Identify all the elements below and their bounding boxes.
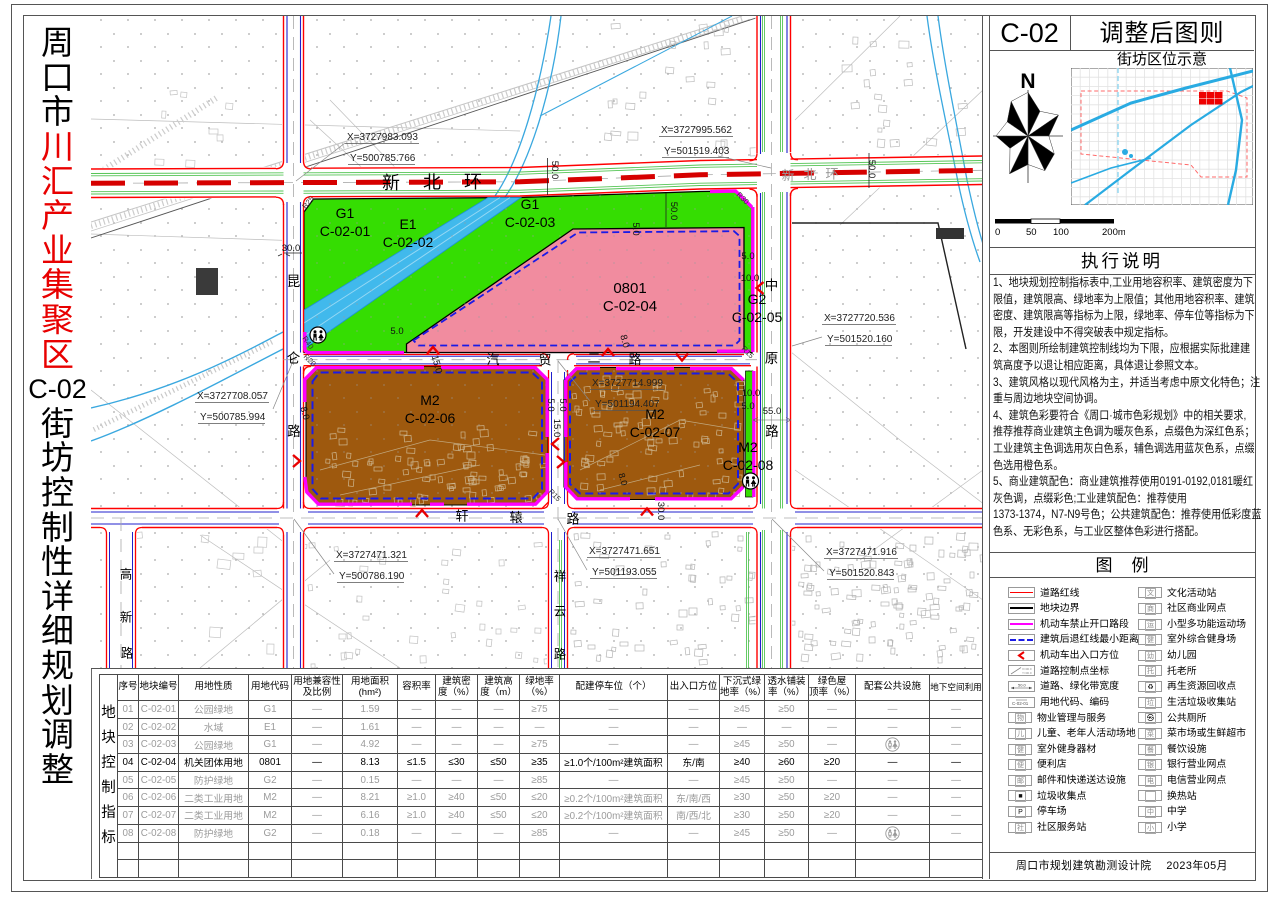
svg-text:X=3727471.321: X=3727471.321 bbox=[336, 550, 407, 561]
svg-text:原: 原 bbox=[765, 351, 779, 366]
svg-text:E1: E1 bbox=[399, 216, 416, 232]
svg-text:C-02-07: C-02-07 bbox=[630, 424, 681, 440]
svg-text:环: 环 bbox=[464, 172, 482, 192]
svg-text:30.0: 30.0 bbox=[282, 243, 301, 254]
svg-text:X=3727995.562: X=3727995.562 bbox=[661, 125, 732, 136]
svg-text:C-02-03: C-02-03 bbox=[505, 214, 556, 230]
svg-text:环: 环 bbox=[825, 167, 838, 182]
svg-text:X=3727471.651: X=3727471.651 bbox=[589, 546, 660, 557]
svg-text:X=3727714.999: X=3727714.999 bbox=[592, 378, 663, 389]
svg-text:C-02-05: C-02-05 bbox=[732, 309, 783, 325]
svg-text:Y=501520.843: Y=501520.843 bbox=[829, 568, 895, 579]
svg-text:10.0: 10.0 bbox=[741, 273, 760, 284]
svg-text:C-02-01: C-02-01 bbox=[320, 223, 371, 239]
svg-text:云: 云 bbox=[554, 605, 567, 619]
svg-text:C-02-02: C-02-02 bbox=[383, 234, 434, 250]
svg-text:0: 0 bbox=[995, 227, 1000, 238]
svg-text:N: N bbox=[1020, 70, 1035, 93]
svg-text:Y=501519.403: Y=501519.403 bbox=[664, 146, 730, 157]
svg-text:C-02-06: C-02-06 bbox=[405, 410, 456, 426]
svg-text:G1: G1 bbox=[521, 196, 540, 212]
svg-text:路: 路 bbox=[554, 647, 567, 662]
svg-text:X=3727720.536: X=3727720.536 bbox=[824, 313, 895, 324]
svg-text:0801: 0801 bbox=[613, 280, 646, 297]
svg-text:Y=00.0: Y=00.0 bbox=[1022, 671, 1032, 675]
svg-text:新: 新 bbox=[781, 168, 794, 183]
svg-text:路: 路 bbox=[628, 352, 641, 367]
svg-text:50: 50 bbox=[1026, 227, 1037, 238]
svg-text:X=3727708.057: X=3727708.057 bbox=[197, 391, 268, 402]
svg-text:M2: M2 bbox=[645, 406, 665, 422]
svg-text:新: 新 bbox=[382, 173, 400, 193]
svg-text:5.0: 5.0 bbox=[630, 222, 641, 235]
svg-text:M2: M2 bbox=[420, 392, 440, 408]
svg-text:高: 高 bbox=[120, 567, 133, 582]
svg-text:路: 路 bbox=[765, 424, 779, 439]
svg-text:路: 路 bbox=[287, 424, 301, 439]
svg-text:Y=500786.190: Y=500786.190 bbox=[339, 571, 405, 582]
svg-text:30.0: 30.0 bbox=[655, 502, 666, 521]
svg-text:贸: 贸 bbox=[538, 353, 551, 368]
svg-text:中: 中 bbox=[765, 278, 779, 293]
svg-text:路: 路 bbox=[121, 646, 134, 661]
svg-text:50.0: 50.0 bbox=[866, 160, 877, 179]
svg-text:新: 新 bbox=[120, 610, 133, 625]
svg-text:仑: 仑 bbox=[287, 351, 301, 366]
svg-text:G2: G2 bbox=[748, 291, 767, 307]
svg-text:M2: M2 bbox=[738, 439, 758, 455]
svg-text:100: 100 bbox=[1053, 227, 1069, 238]
svg-text:Y=500785.994: Y=500785.994 bbox=[200, 412, 266, 423]
svg-text:C-02-04: C-02-04 bbox=[603, 298, 657, 315]
svg-text:C-02-01: C-02-01 bbox=[1012, 701, 1029, 706]
svg-text:5.0: 5.0 bbox=[545, 398, 556, 411]
svg-text:二: 二 bbox=[587, 351, 600, 366]
svg-text:X=3727983.093: X=3727983.093 bbox=[347, 132, 418, 143]
svg-text:10.0: 10.0 bbox=[742, 388, 761, 399]
svg-text:昆: 昆 bbox=[287, 274, 301, 289]
svg-text:5.0: 5.0 bbox=[390, 326, 403, 337]
svg-text:15.0: 15.0 bbox=[551, 419, 562, 438]
svg-text:55.0: 55.0 bbox=[763, 406, 782, 417]
svg-text:50.0: 50.0 bbox=[549, 161, 560, 180]
svg-text:Y=500785.766: Y=500785.766 bbox=[350, 153, 416, 164]
svg-text:5.0: 5.0 bbox=[741, 401, 754, 412]
svg-text:5.0: 5.0 bbox=[557, 398, 568, 411]
svg-text:X=3727471.916: X=3727471.916 bbox=[826, 547, 897, 558]
svg-text:Y=501520.160: Y=501520.160 bbox=[827, 334, 893, 345]
svg-text:Y=501193.055: Y=501193.055 bbox=[592, 567, 657, 578]
svg-text:汽: 汽 bbox=[486, 352, 499, 367]
svg-text:G1: G1 bbox=[336, 205, 355, 221]
svg-text:50.0: 50.0 bbox=[1018, 683, 1027, 688]
svg-text:辕: 辕 bbox=[509, 510, 522, 525]
svg-text:路: 路 bbox=[566, 512, 579, 527]
svg-text:5.0: 5.0 bbox=[741, 251, 754, 262]
svg-text:轩: 轩 bbox=[455, 509, 468, 524]
svg-text:北: 北 bbox=[423, 173, 441, 193]
svg-text:祥: 祥 bbox=[554, 570, 567, 584]
svg-text:200m: 200m bbox=[1102, 227, 1125, 238]
svg-text:C-02-08: C-02-08 bbox=[723, 457, 774, 473]
svg-text:50.0: 50.0 bbox=[668, 202, 679, 221]
svg-text:北: 北 bbox=[803, 167, 816, 182]
